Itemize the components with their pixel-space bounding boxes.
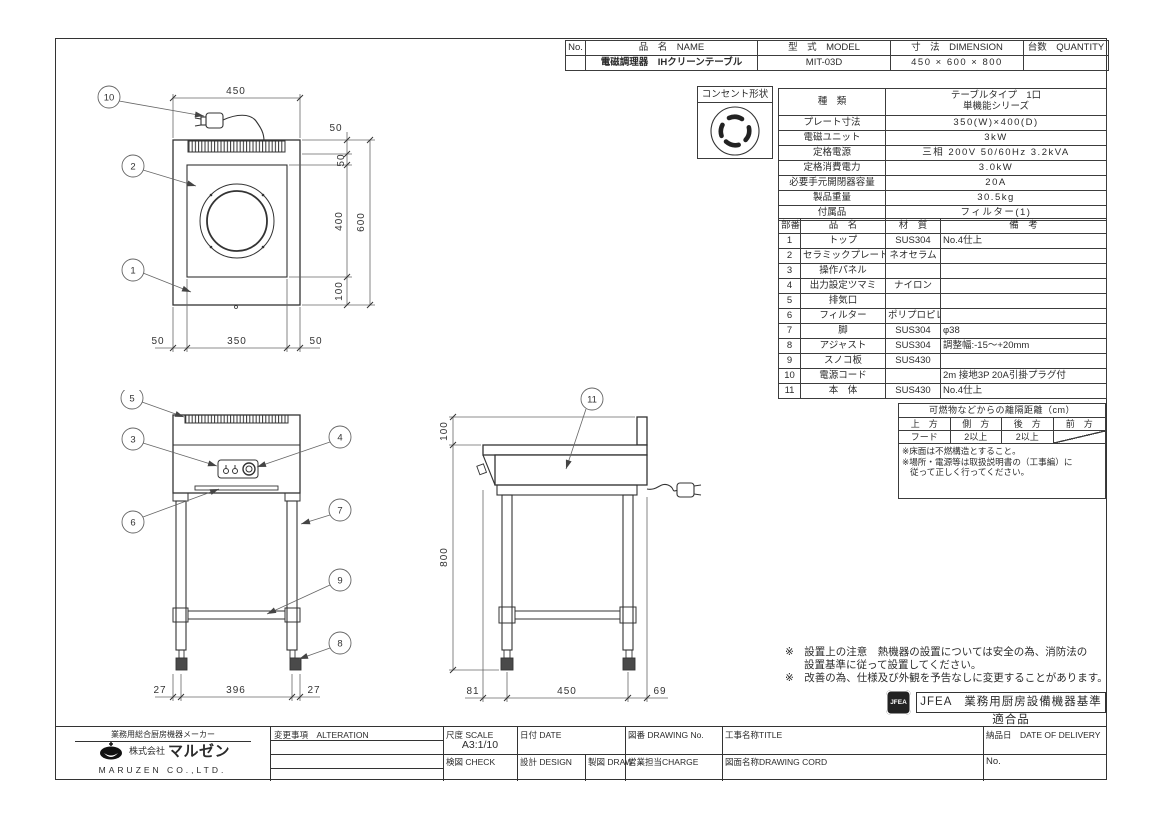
clearance-title: 可燃物などからの離隔距離（cm） [899, 404, 1105, 418]
dim-label: 69 [653, 686, 666, 697]
spec-label: 電磁ユニット [779, 131, 886, 146]
part-remark [941, 354, 1107, 369]
clearance-note-line: ※床面は不燃構造とすること。 [902, 446, 1102, 457]
spec-value: 350(W)×400(D) [886, 116, 1107, 131]
clearance-value: 2以上 [1002, 431, 1054, 444]
parts-row: 10電源コード2m 接地3P 20A引掛プラグ付 [779, 369, 1107, 384]
part-remark [941, 249, 1107, 264]
part-no: 5 [779, 294, 801, 309]
part-name: 排気口 [801, 294, 886, 309]
adjust-foot-right [290, 658, 301, 670]
clearance-value-diagonal [1054, 431, 1106, 444]
dim-label: 450 [557, 686, 577, 697]
part-no: 1 [779, 234, 801, 249]
drawing-sheet: No. 品 名 NAME 型 式 MODEL 寸 法 DIMENSION 台数 … [0, 0, 1159, 820]
part-name: 脚 [801, 324, 886, 339]
spec-value: 3.0kW [886, 161, 1107, 176]
part-remark [941, 309, 1107, 324]
callout-10: 10 [104, 93, 115, 104]
part-name: 本 体 [801, 384, 886, 399]
parts-header-row: 部番 品 名 材 質 備 考 [779, 219, 1107, 234]
latch [477, 464, 487, 475]
clearance-header: 前 方 [1054, 418, 1106, 431]
remark-line: ※ 設置上の注意 熱機器の設置については安全の為、消防法の [785, 646, 1115, 659]
adjust-foot-front [501, 658, 513, 670]
design-label: 設計 DESIGN [520, 756, 572, 768]
clearance-header: 側 方 [951, 418, 1003, 431]
front-body [173, 415, 301, 670]
identification-value-row: 電磁調理器 IHクリーンテーブル MIT-03D 450 × 600 × 800 [566, 56, 1109, 71]
spec-label: プレート寸法 [779, 116, 886, 131]
callout-6: 6 [130, 518, 135, 529]
callout-7: 7 [337, 506, 342, 517]
part-material: ネオセラム [886, 249, 941, 264]
leg-left [176, 501, 186, 650]
callout-1: 1 [130, 266, 135, 277]
parts-row: 2セラミックプレートネオセラム [779, 249, 1107, 264]
power-cord-plan [195, 113, 264, 141]
part-remark: No.4仕上 [941, 234, 1107, 249]
spec-label: 種 類 [779, 89, 886, 116]
part-remark [941, 279, 1107, 294]
callout-9: 9 [337, 576, 342, 587]
model-value: MIT-03D [758, 56, 891, 71]
no-label: No. [986, 756, 1001, 767]
identification-table: No. 品 名 NAME 型 式 MODEL 寸 法 DIMENSION 台数 … [565, 40, 1109, 71]
parts-header: 材 質 [886, 219, 941, 234]
part-no: 6 [779, 309, 801, 324]
part-remark: 2m 接地3P 20A引掛プラグ付 [941, 369, 1107, 384]
dim-label: 50 [329, 123, 342, 134]
dim-label: 400 [334, 211, 345, 231]
spec-table: 種 類 テーブルタイプ 1口 単機能シリーズ プレート寸法 350(W)×400… [778, 88, 1107, 221]
clearance-value-row: フード 2以上 2以上 [899, 431, 1105, 444]
part-no: 9 [779, 354, 801, 369]
part-name: 操作パネル [801, 264, 886, 279]
twist-lock-outlet-icon [698, 103, 772, 158]
spec-value: 三相 200V 50/60Hz 3.2kVA [886, 146, 1107, 161]
product-name: 電磁調理器 IHクリーンテーブル [586, 56, 758, 71]
part-name: セラミックプレート [801, 249, 886, 264]
parts-row: 1トップSUS304No.4仕上 [779, 234, 1107, 249]
part-remark: φ38 [941, 324, 1107, 339]
dim-label: 100 [334, 281, 345, 301]
alteration-label: 変更事項 ALTERATION [274, 729, 369, 741]
part-material [886, 264, 941, 279]
part-remark: 調整幅:-15〜+20mm [941, 339, 1107, 354]
part-material: ポリプロピレン [886, 309, 941, 324]
drawing-cord-label: 図面名称DRAWING CORD [725, 756, 827, 768]
vent-band-plan [188, 141, 285, 152]
dim-label: 450 [226, 86, 246, 97]
clearance-notes: ※床面は不燃構造とすること。 ※場所・電源等は取扱説明書の（工事編）に 従って正… [899, 444, 1105, 480]
part-name: 出力設定ツマミ [801, 279, 886, 294]
parts-row: 3操作パネル [779, 264, 1107, 279]
remark-line: ※ 改善の為、仕様及び外観を予告なしに変更することがあります。 [785, 672, 1115, 685]
charge-label: 営業担当CHARGE [628, 756, 698, 768]
part-name: スノコ板 [801, 354, 886, 369]
model-header: 型 式 MODEL [758, 41, 891, 56]
part-material [886, 369, 941, 384]
vent-band-front [185, 415, 288, 423]
no-value [566, 56, 586, 71]
identification-header-row: No. 品 名 NAME 型 式 MODEL 寸 法 DIMENSION 台数 … [566, 41, 1109, 56]
spec-value: 3kW [886, 131, 1107, 146]
backsplash [637, 417, 647, 445]
titleblock-divider [585, 754, 586, 781]
quantity-header: 台数 QUANTITY [1024, 41, 1109, 56]
dim-label: 600 [356, 212, 367, 232]
clearance-header: 後 方 [1002, 418, 1054, 431]
spec-label: 定格電源 [779, 146, 886, 161]
check-label: 検図 CHECK [446, 756, 495, 768]
leg-rear [623, 495, 633, 650]
part-material: SUS304 [886, 234, 941, 249]
part-material: SUS304 [886, 324, 941, 339]
parts-row: 8アジャストSUS304調整幅:-15〜+20mm [779, 339, 1107, 354]
clearance-note-line: ※場所・電源等は取扱説明書の（工事編）に [902, 457, 1102, 468]
clearance-box: 可燃物などからの離隔距離（cm） 上 方 側 方 後 方 前 方 フード 2以上… [898, 403, 1106, 499]
dim-label: 27 [307, 685, 320, 696]
callout-11: 11 [587, 395, 597, 406]
part-material: SUS430 [886, 384, 941, 399]
callout-3: 3 [130, 435, 135, 446]
dim-label: 50 [336, 153, 347, 166]
part-material: SUS430 [886, 354, 941, 369]
jfea-logo-icon: JFEA [886, 690, 911, 715]
callout-4: 4 [337, 433, 342, 444]
leg-right [287, 501, 297, 650]
part-material: ナイロン [886, 279, 941, 294]
clearance-value: 2以上 [951, 431, 1003, 444]
remark-line: 設置基準に従って設置してください。 [804, 659, 1115, 672]
part-material: SUS304 [886, 339, 941, 354]
spec-value: テーブルタイプ 1口 単機能シリーズ [886, 89, 1107, 116]
part-name: トップ [801, 234, 886, 249]
part-no: 3 [779, 264, 801, 279]
front-view: 27 396 27 5 3 4 6 [60, 390, 390, 720]
dimension-header: 寸 法 DIMENSION [891, 41, 1024, 56]
dimension-value: 450 × 600 × 800 [891, 56, 1024, 71]
part-name: アジャスト [801, 339, 886, 354]
date-label: 日付 DATE [520, 729, 561, 741]
part-remark [941, 294, 1107, 309]
part-remark: No.4仕上 [941, 384, 1107, 399]
part-no: 11 [779, 384, 801, 399]
parts-row: 4出力設定ツマミナイロン [779, 279, 1107, 294]
clearance-note-line: 従って正しく行ってください。 [910, 467, 1102, 478]
company-name-en: MARUZEN CO.,LTD. [55, 765, 270, 775]
parts-header: 部番 [779, 219, 801, 234]
dim-label: 100 [439, 421, 450, 441]
company-name: マルゼン [168, 740, 230, 761]
callout-2: 2 [130, 162, 135, 173]
part-material [886, 294, 941, 309]
titleblock-divider [443, 754, 1107, 755]
callout-5: 5 [129, 394, 134, 405]
outlet-shape-label: コンセント形状 [698, 87, 772, 103]
spec-value: 20A [886, 176, 1107, 191]
drawing-no-label: 図番 DRAWING No. [628, 729, 704, 741]
scale-value: A3:1/10 [443, 739, 517, 751]
title-label: 工事名称TITLE [725, 729, 782, 741]
dim-label: 350 [227, 336, 247, 347]
spec-label: 定格消費電力 [779, 161, 886, 176]
maruzen-logo-icon [96, 742, 126, 760]
outlet-shape-box: コンセント形状 [697, 86, 773, 159]
part-name: 電源コード [801, 369, 886, 384]
part-remark [941, 264, 1107, 279]
installation-remarks: ※ 設置上の注意 熱機器の設置については安全の為、消防法の 設置基準に従って設置… [785, 646, 1115, 685]
cross-rail-side [515, 611, 620, 619]
parts-header: 備 考 [941, 219, 1107, 234]
spec-label: 製品重量 [779, 191, 886, 206]
part-no: 8 [779, 339, 801, 354]
jfea-logo-text: JFEA [890, 699, 907, 706]
plan-view: 450 50 50 400 100 600 50 350 50 10 2 1 [60, 80, 390, 370]
company-prefix: 株式会社 [129, 744, 165, 757]
clearance-value: フード [899, 431, 951, 444]
company-logo: 株式会社 マルゼン [63, 740, 263, 761]
title-block: 業務用総合厨房機器メーカー 株式会社 マルゼン MARUZEN CO.,LTD.… [55, 726, 1107, 780]
titleblock-divider [270, 768, 443, 769]
plan-callouts: 10 2 1 [98, 86, 144, 281]
power-cord-side [647, 483, 701, 497]
no-header: No. [566, 41, 586, 56]
dim-label: 800 [439, 547, 450, 567]
parts-row: 6フィルターポリプロピレン [779, 309, 1107, 324]
adjust-foot-left [176, 658, 187, 670]
name-header: 品 名 NAME [586, 41, 758, 56]
front-dim-labels: 27 396 27 [153, 685, 320, 696]
delivery-label: 納品日 DATE OF DELIVERY [986, 729, 1100, 741]
draw-label: 製図 DRAW [588, 756, 633, 768]
adjust-foot-rear [623, 658, 635, 670]
part-no: 2 [779, 249, 801, 264]
side-view: 100 800 81 450 69 11 [420, 385, 720, 730]
part-name: フィルター [801, 309, 886, 324]
dim-label: 27 [153, 685, 166, 696]
parts-row: 7脚SUS304φ38 [779, 324, 1107, 339]
clearance-header-row: 上 方 側 方 後 方 前 方 [899, 418, 1105, 431]
dim-label: 396 [226, 685, 246, 696]
parts-row: 11本 体SUS430No.4仕上 [779, 384, 1107, 399]
part-no: 7 [779, 324, 801, 339]
parts-table: 部番 品 名 材 質 備 考 1トップSUS304No.4仕上 2セラミックプレ… [778, 218, 1107, 399]
dim-label: 50 [151, 336, 164, 347]
spec-value: 30.5kg [886, 191, 1107, 206]
parts-header: 品 名 [801, 219, 886, 234]
spec-label: 必要手元開閉器容量 [779, 176, 886, 191]
plan-body [173, 140, 300, 309]
jfea-certification-label: JFEA 業務用厨房設備機器基準適合品 [916, 692, 1106, 713]
titleblock-divider [270, 754, 443, 755]
part-no: 10 [779, 369, 801, 384]
leg-front [502, 495, 512, 650]
parts-row: 9スノコ板SUS430 [779, 354, 1107, 369]
side-body [477, 417, 647, 670]
parts-row: 5排気口 [779, 294, 1107, 309]
dim-label: 50 [309, 336, 322, 347]
dim-label: 81 [466, 686, 479, 697]
part-no: 4 [779, 279, 801, 294]
callout-8: 8 [337, 639, 342, 650]
clearance-header: 上 方 [899, 418, 951, 431]
quantity-value [1024, 56, 1109, 71]
